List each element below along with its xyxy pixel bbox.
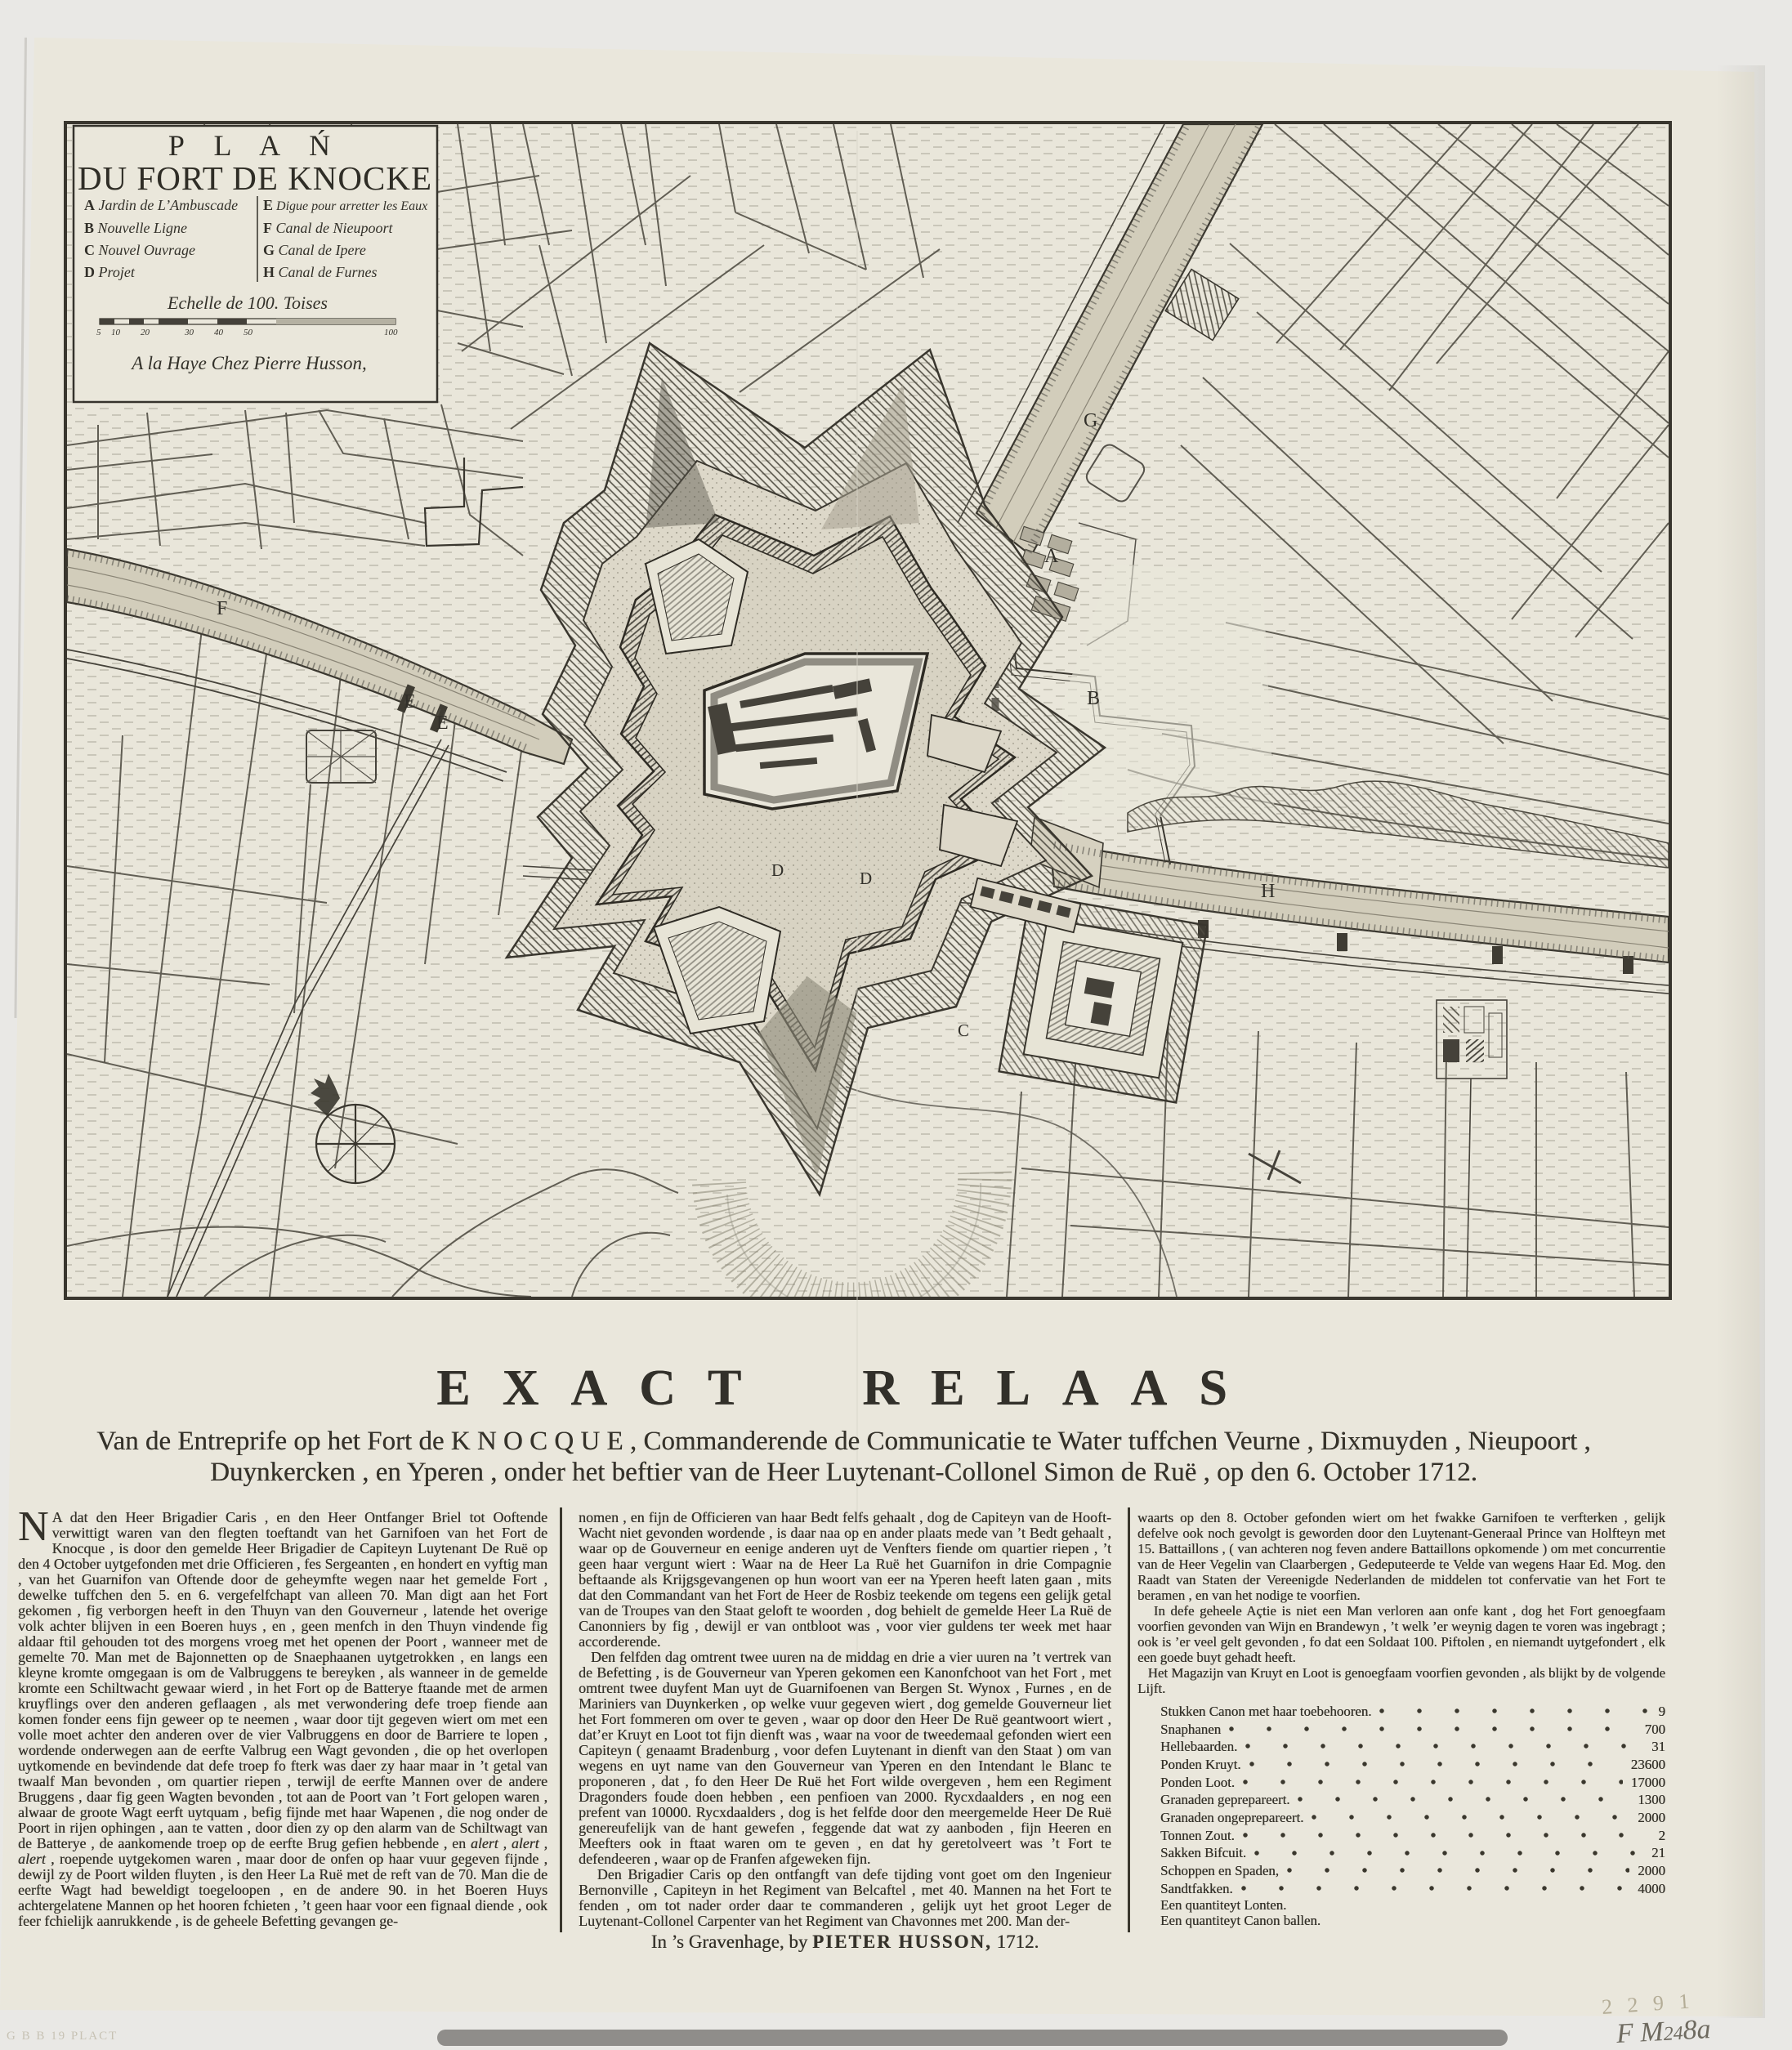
svg-text:D: D — [771, 860, 784, 880]
svg-text:10: 10 — [111, 328, 121, 337]
svg-text:50: 50 — [244, 328, 253, 337]
svg-text:5: 5 — [96, 328, 101, 337]
svg-text:C: C — [958, 1021, 969, 1040]
svg-text:P L A Ń: P L A Ń — [168, 129, 342, 162]
svg-text:B: B — [1087, 688, 1100, 709]
svg-text:D: D — [860, 869, 872, 888]
svg-text:20: 20 — [141, 328, 150, 337]
svg-text:H Canal de Furnes: H Canal de Furnes — [263, 264, 378, 280]
svg-text:E: E — [404, 691, 416, 712]
svg-text:A la Haye Chez Pierre Husson,: A la Haye Chez Pierre Husson, — [130, 353, 366, 373]
svg-text:F Canal de Nieupoort: F Canal de Nieupoort — [263, 220, 393, 236]
svg-text:D Projet: D Projet — [84, 264, 136, 280]
svg-text:G Canal de Ipere: G Canal de Ipere — [263, 242, 366, 258]
svg-text:100: 100 — [384, 328, 398, 337]
svg-text:E: E — [436, 712, 449, 734]
svg-text:A Jardin de L’Ambuscade: A Jardin de L’Ambuscade — [84, 197, 238, 213]
svg-text:F: F — [217, 598, 227, 619]
svg-text:30: 30 — [184, 328, 194, 337]
svg-text:E Digue pour arretter les Eaux: E Digue pour arretter les Eaux — [263, 197, 427, 213]
svg-text:DU FORT DE KNOCKE: DU FORT DE KNOCKE — [78, 159, 432, 197]
svg-text:40: 40 — [214, 328, 224, 337]
svg-text:C Nouvel Ouvrage: C Nouvel Ouvrage — [84, 242, 195, 258]
svg-text:A: A — [1044, 546, 1059, 567]
svg-text:H: H — [1261, 881, 1275, 902]
svg-text:Echelle de 100. Toises: Echelle de 100. Toises — [167, 293, 328, 313]
svg-text:B Nouvelle Ligne: B Nouvelle Ligne — [84, 220, 187, 236]
svg-text:G: G — [1084, 410, 1097, 431]
